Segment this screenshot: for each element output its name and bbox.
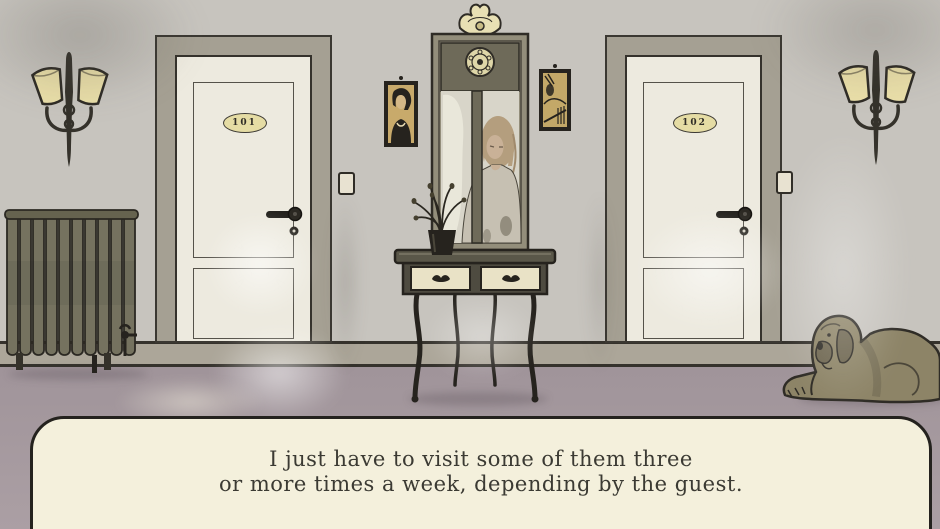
radiator xyxy=(4,203,140,375)
wall-sconce-left-icon xyxy=(25,50,115,170)
door-panel-lower xyxy=(193,268,294,339)
door-102[interactable]: 102 xyxy=(605,35,782,343)
door-101-number: 101 xyxy=(232,118,257,128)
dog[interactable] xyxy=(780,296,940,404)
mirror-rosette-icon xyxy=(466,48,494,76)
plant-pot xyxy=(428,230,456,255)
light-switch-right[interactable] xyxy=(776,171,793,194)
dog-ear xyxy=(837,330,853,363)
door-102-number-plate: 102 xyxy=(673,113,717,133)
dialogue-box[interactable]: I just have to visit some of them three … xyxy=(30,416,932,529)
console-table xyxy=(393,246,557,404)
wall-sconce-right-icon xyxy=(832,48,922,168)
portrait-left xyxy=(381,76,421,150)
dialogue-text: I just have to visit some of them three … xyxy=(33,447,929,497)
light-switch-left[interactable] xyxy=(338,172,355,195)
door-panel-lower xyxy=(643,268,744,339)
door-101[interactable]: 101 xyxy=(155,35,332,343)
door-handle-icon[interactable] xyxy=(714,203,754,239)
plant xyxy=(408,180,480,258)
dialogue-line-2: or more times a week, depending by the g… xyxy=(33,472,929,497)
dialogue-line-1: I just have to visit some of them three xyxy=(33,447,929,472)
picture-right xyxy=(536,64,574,134)
door-handle-icon[interactable] xyxy=(264,203,304,239)
door-101-slab: 101 xyxy=(175,55,312,341)
door-102-number: 102 xyxy=(682,118,707,128)
door-101-number-plate: 101 xyxy=(223,113,267,133)
hallway-scene: 101 102 xyxy=(0,0,940,529)
mirror-crest-icon xyxy=(459,5,500,36)
door-102-slab: 102 xyxy=(625,55,762,341)
